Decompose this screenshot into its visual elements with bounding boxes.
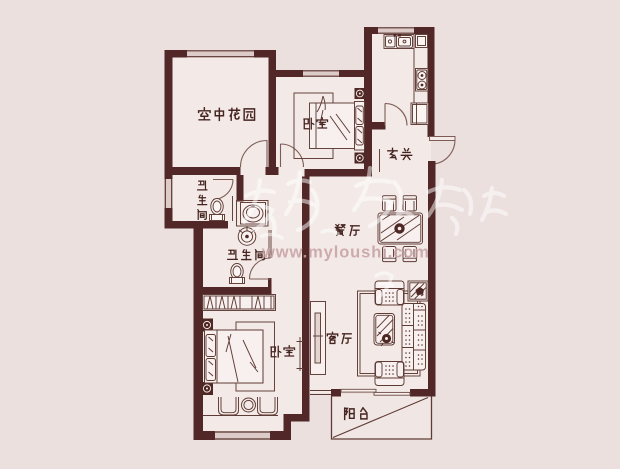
svg-text:www.myloushi.com: www.myloushi.com xyxy=(261,244,430,262)
